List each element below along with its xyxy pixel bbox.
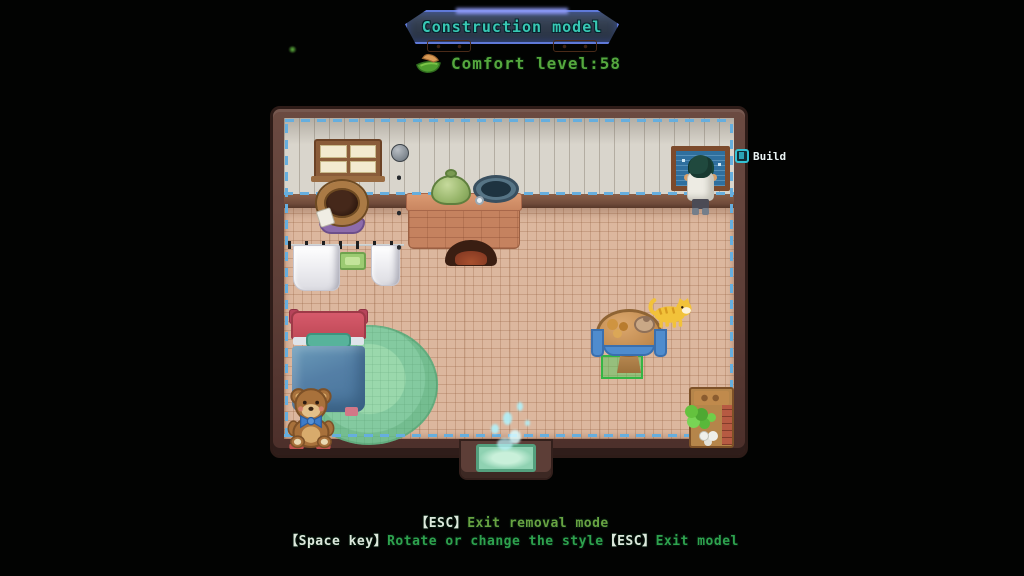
cooking-pot[interactable] <box>431 169 471 206</box>
window-pane <box>350 161 377 174</box>
bath-mat[interactable] <box>339 252 366 270</box>
lamp-pole <box>397 159 401 263</box>
shelf-carving <box>694 391 729 405</box>
build-key-icon <box>735 149 749 163</box>
help-line-1: 【ESC】Exit removal mode <box>0 512 1024 531</box>
help-key-space: 【Space key】 <box>285 534 387 549</box>
selection-dash-top <box>285 119 733 122</box>
comfort-hand-leaf-icon <box>413 50 443 76</box>
storage-barrel[interactable] <box>317 181 367 238</box>
help-text-exit-model: Exit model <box>656 534 739 549</box>
towel-left[interactable] <box>293 245 340 291</box>
bed-foot-tab <box>345 407 358 416</box>
comfort-level-text: Comfort level:58 <box>451 54 621 73</box>
tablecloth-flap <box>654 329 667 357</box>
shelf-bowls <box>699 431 709 441</box>
window-pane <box>320 161 347 174</box>
mode-title: Construction model <box>405 10 619 44</box>
shelf-plant <box>685 405 698 418</box>
entrance-sparkle <box>497 438 513 450</box>
floor-lamp[interactable] <box>391 144 409 264</box>
oven-fire <box>455 251 487 265</box>
entrance-sparkle <box>525 420 530 426</box>
build-prompt[interactable]: Build <box>735 149 786 163</box>
help-text-exit-removal: Exit removal mode <box>467 516 609 531</box>
teddy-bear[interactable] <box>281 383 343 449</box>
player-hair <box>689 155 712 178</box>
player-shoe <box>692 208 699 215</box>
tablecloth-front <box>603 345 655 356</box>
cat[interactable] <box>645 297 692 330</box>
cat-graphic <box>645 297 692 330</box>
teddy-bear-graphic <box>281 383 343 449</box>
window[interactable] <box>314 139 382 179</box>
frying-pan[interactable] <box>473 175 519 206</box>
bath-mat-center <box>345 257 360 265</box>
comfort-level: Comfort level:58 <box>0 50 1024 76</box>
player-character <box>684 155 717 218</box>
pan-handle <box>475 196 484 205</box>
window-pane <box>350 145 377 158</box>
build-label: Build <box>753 150 786 163</box>
tablecloth-flap <box>591 329 604 357</box>
bread-food <box>607 319 618 330</box>
entrance-sparkle <box>491 424 499 434</box>
help-key-esc2: 【ESC】 <box>604 534 656 549</box>
pot-knob <box>445 169 457 178</box>
stove-body <box>408 209 520 249</box>
entrance-sparkle <box>503 412 512 425</box>
plant-shelf[interactable] <box>689 387 734 448</box>
shelf-brick-column <box>722 405 732 445</box>
pan-inner <box>481 181 511 197</box>
game-screen: Construction model Comfort level:58 <box>0 0 1024 576</box>
mode-banner: Construction model <box>405 8 619 48</box>
oven-mouth <box>445 240 497 266</box>
pot-lid <box>431 175 471 205</box>
help-key-esc: 【ESC】 <box>415 516 467 531</box>
entrance-sparkle <box>517 402 523 411</box>
help-line-2: 【Space key】Rotate or change the style【ES… <box>0 530 1024 549</box>
window-pane <box>320 145 347 158</box>
help-text-rotate: Rotate or change the style <box>387 534 604 549</box>
player-shoe <box>702 208 709 215</box>
